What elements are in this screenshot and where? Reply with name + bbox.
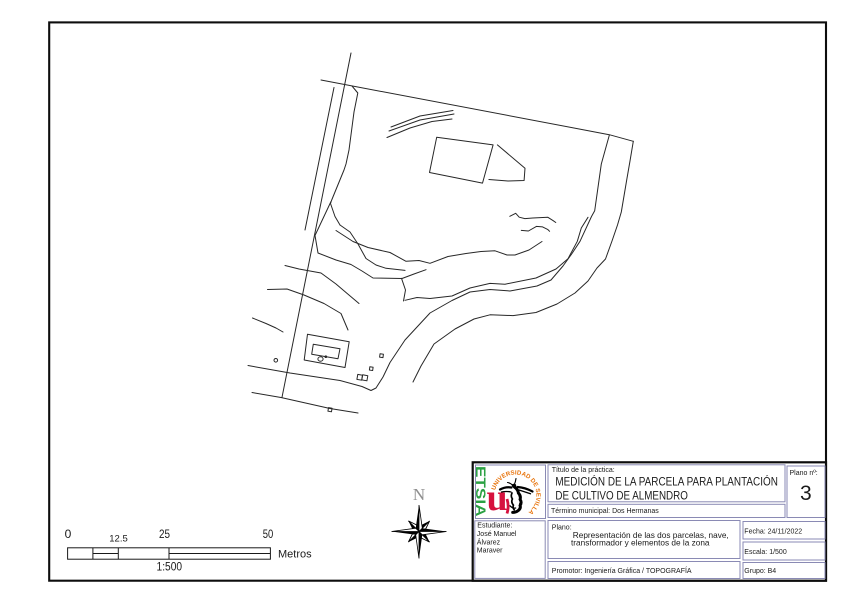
svg-text:Plano:: Plano: xyxy=(552,524,572,531)
svg-text:MEDICIÓN DE LA PARCELA PARA PL: MEDICIÓN DE LA PARCELA PARA PLANTACIÓN xyxy=(555,476,778,489)
svg-text:Término municipal: Dos Hermana: Término municipal: Dos Hermanas xyxy=(551,508,659,515)
svg-text:0: 0 xyxy=(65,527,72,541)
svg-text:u: u xyxy=(487,477,508,519)
svg-text:Escala: 1/500: Escala: 1/500 xyxy=(744,549,787,556)
svg-text:Título de la práctica:: Título de la práctica: xyxy=(552,467,615,474)
svg-text:José Manuel: José Manuel xyxy=(477,531,517,538)
svg-text:Álvarez: Álvarez xyxy=(477,538,501,547)
svg-text:50: 50 xyxy=(263,527,274,541)
svg-text:Maraver: Maraver xyxy=(477,548,503,555)
svg-text:3: 3 xyxy=(800,482,812,505)
svg-text:25: 25 xyxy=(159,527,170,541)
svg-text:Fecha: 24/11/2022: Fecha: 24/11/2022 xyxy=(744,529,802,536)
svg-text:Promotor: Ingeniería Gráfica /: Promotor: Ingeniería Gráfica / TOPOGRAFÍ… xyxy=(552,566,692,575)
svg-text:DE CULTIVO DE ALMENDRO: DE CULTIVO DE ALMENDRO xyxy=(555,491,688,503)
svg-text:Metros: Metros xyxy=(278,548,312,560)
svg-text:1:500: 1:500 xyxy=(157,562,183,574)
svg-text:Estudiante:: Estudiante: xyxy=(477,523,512,530)
svg-text:transformador y elementos de l: transformador y elementos de la zona xyxy=(571,539,710,548)
svg-text:Grupo: B4: Grupo: B4 xyxy=(744,568,776,575)
svg-text:12.5: 12.5 xyxy=(109,534,128,544)
svg-text:Plano nº:: Plano nº: xyxy=(790,470,818,477)
svg-text:N: N xyxy=(413,485,425,504)
